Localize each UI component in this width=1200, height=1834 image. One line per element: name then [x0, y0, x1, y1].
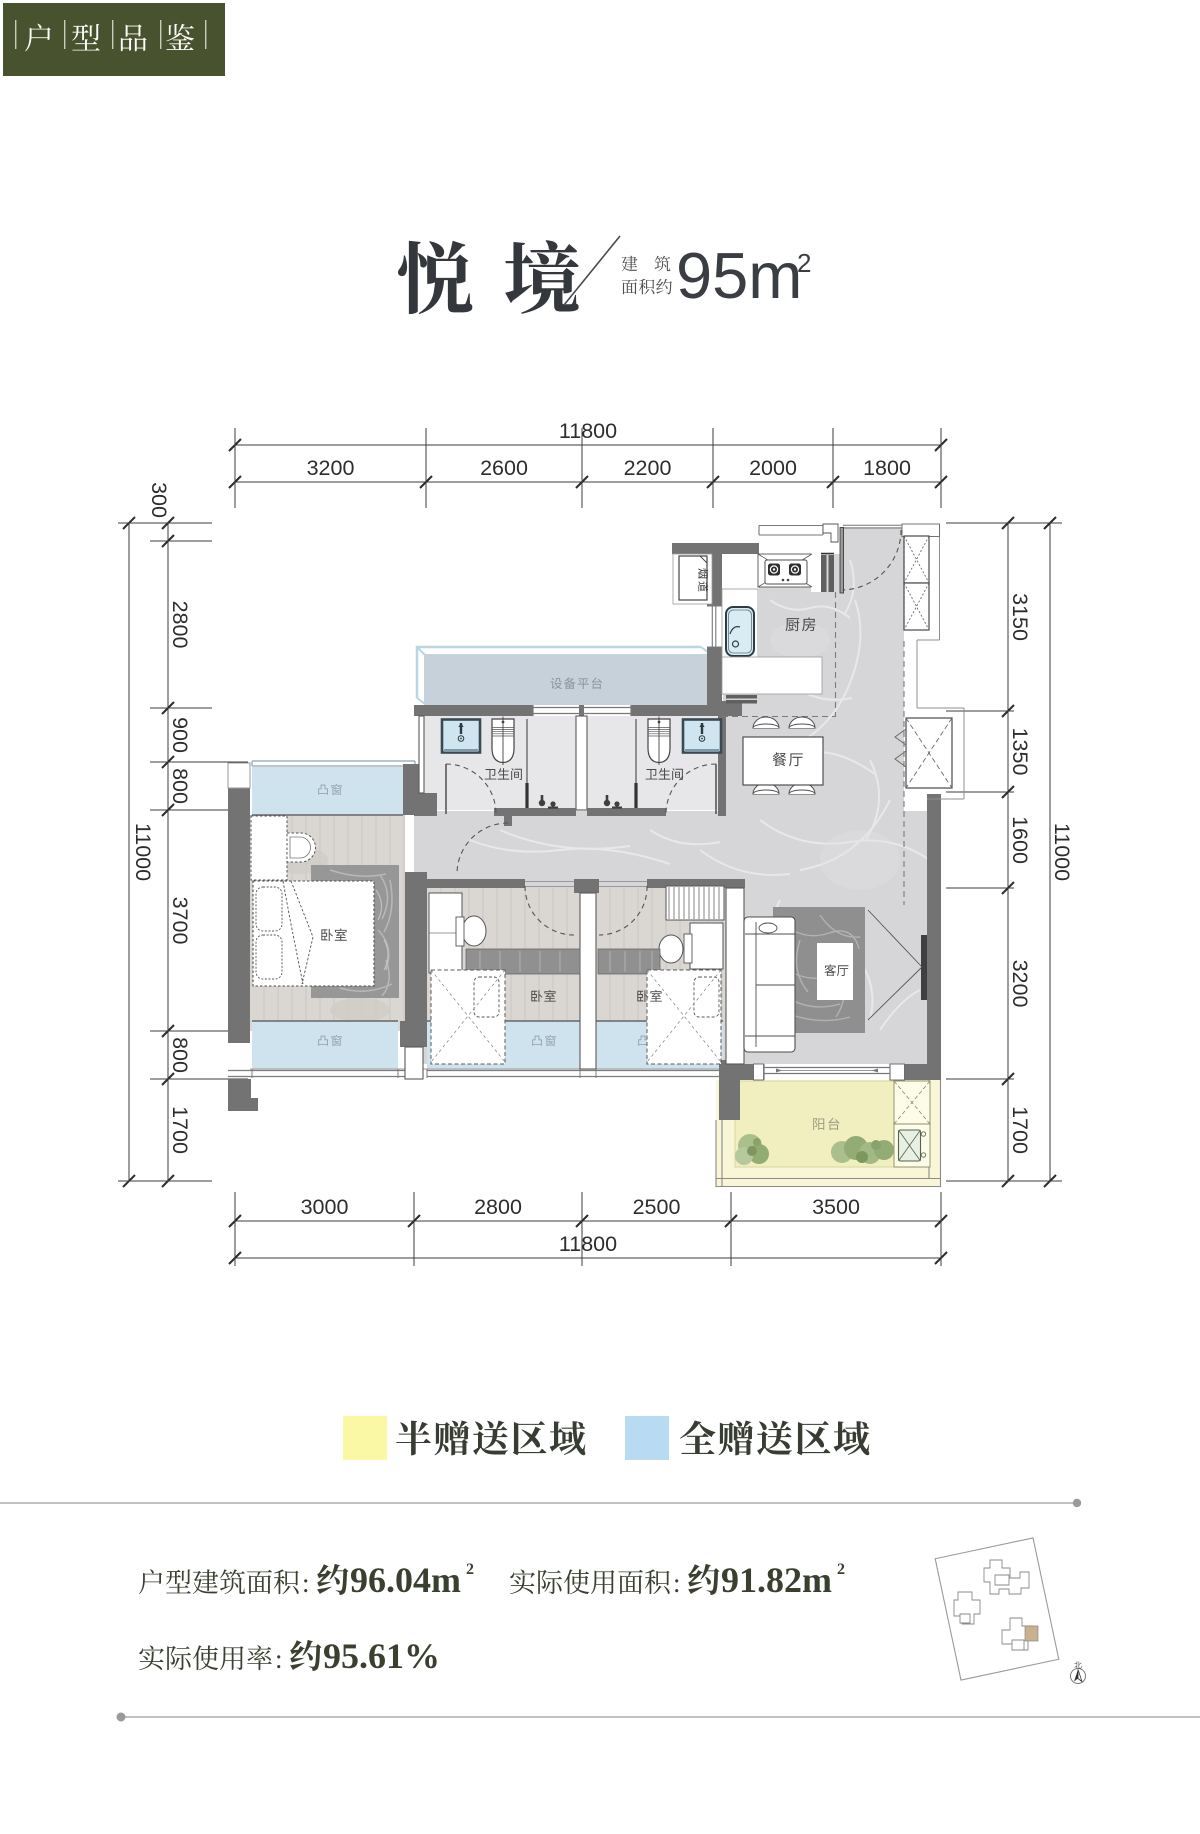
- svg-text:800: 800: [168, 1037, 192, 1073]
- svg-text:1350: 1350: [1008, 728, 1032, 776]
- svg-text:800: 800: [168, 768, 192, 804]
- svg-text:3150: 3150: [1008, 593, 1032, 641]
- svg-text:1700: 1700: [1008, 1106, 1032, 1154]
- svg-text:3000: 3000: [301, 1195, 349, 1219]
- svg-text:2600: 2600: [480, 456, 528, 480]
- svg-text:3200: 3200: [1008, 960, 1032, 1008]
- svg-text:1800: 1800: [863, 456, 911, 480]
- svg-text:3500: 3500: [812, 1195, 860, 1219]
- svg-text:11800: 11800: [559, 419, 617, 443]
- svg-text:95m: 95m: [676, 239, 802, 312]
- svg-text:11800: 11800: [559, 1232, 617, 1256]
- svg-text:1600: 1600: [1008, 816, 1032, 864]
- svg-text::: :: [302, 1568, 310, 1598]
- svg-text:2: 2: [797, 248, 811, 278]
- svg-text:2000: 2000: [749, 456, 797, 480]
- svg-text:3200: 3200: [307, 456, 355, 480]
- svg-text:1700: 1700: [168, 1106, 192, 1154]
- svg-text:2800: 2800: [474, 1195, 522, 1219]
- svg-text:91.82m: 91.82m: [721, 1560, 832, 1600]
- svg-text:2500: 2500: [633, 1195, 681, 1219]
- svg-text:900: 900: [168, 717, 192, 753]
- svg-text:2: 2: [837, 1561, 845, 1578]
- svg-text:2200: 2200: [624, 456, 672, 480]
- svg-text:95.61%: 95.61%: [323, 1636, 440, 1676]
- svg-text:11000: 11000: [131, 823, 155, 881]
- svg-text:2800: 2800: [168, 601, 192, 649]
- svg-text:96.04m: 96.04m: [350, 1560, 461, 1600]
- svg-text:11000: 11000: [1050, 823, 1074, 881]
- svg-text:2: 2: [466, 1561, 474, 1578]
- svg-text:300: 300: [147, 482, 171, 518]
- svg-text::: :: [275, 1644, 283, 1674]
- svg-text:3700: 3700: [168, 897, 192, 945]
- svg-text::: :: [673, 1568, 681, 1598]
